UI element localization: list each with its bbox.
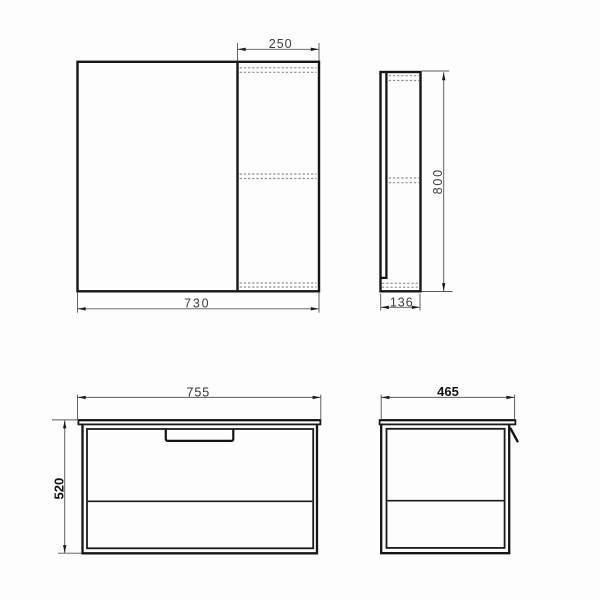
svg-text:250: 250 [269,37,293,51]
svg-text:755: 755 [187,385,211,399]
svg-text:520: 520 [51,478,66,500]
svg-text:465: 465 [437,384,459,399]
svg-text:800: 800 [431,168,445,194]
svg-text:730: 730 [184,297,210,311]
svg-text:136: 136 [390,295,414,309]
